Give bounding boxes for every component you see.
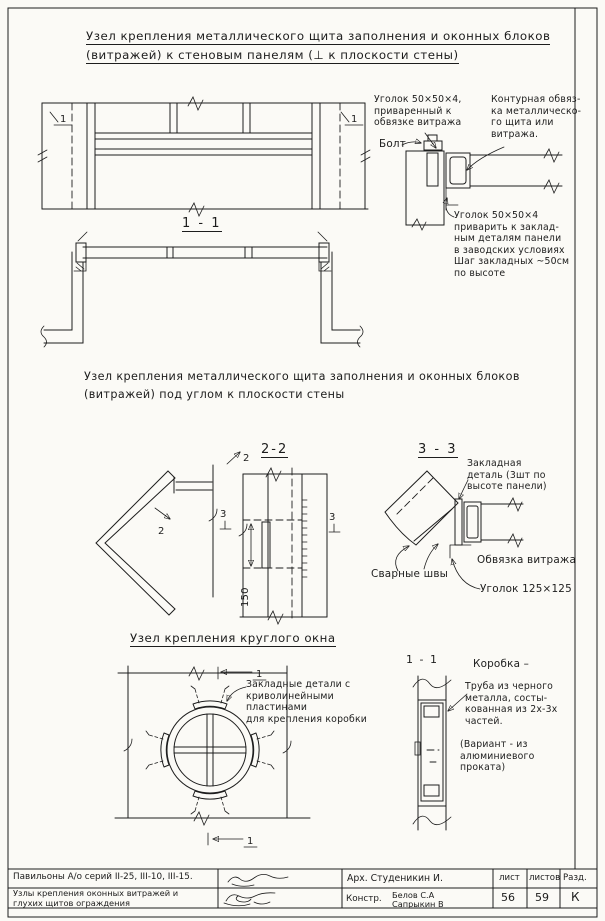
note-korobka-title: Коробка – [473, 659, 529, 671]
titleblock-constructor-label: Констр. [346, 894, 382, 904]
corner-plan: 2 2 3 3 [96, 452, 340, 615]
signature-constructor [224, 893, 275, 906]
elev-mark-right: 1 [351, 114, 357, 125]
cut-mark-3-left: 3 [220, 509, 226, 520]
plan-section-1-1 [41, 232, 363, 347]
titleblock-project: Павильоны А/о серий II-25, III-10, III-1… [13, 872, 193, 882]
note-korobka-body: Труба из черного металла, состы- кованна… [465, 681, 557, 727]
elev-mark-left: 1 [60, 114, 66, 125]
note-embed-detail: Закладная деталь (3шт по высоте панели) [467, 458, 547, 493]
second-title-line1: Узел крепления металлического щита запол… [84, 371, 520, 383]
cut-mark-2-top: 2 [243, 453, 249, 464]
signature-architect [228, 874, 288, 886]
titleblock-col-razd: Разд. [563, 873, 587, 883]
note-korobka-variant: (Вариант - из алюминиевого проката) [460, 739, 535, 774]
drawing-sheet: 1 1 [0, 0, 605, 921]
note-bolt: Болт [379, 139, 406, 151]
titleblock-razd-value: К [571, 890, 580, 904]
titleblock-sheet-number: 56 [501, 891, 515, 904]
main-title-line1: Узел крепления металлического щита запол… [86, 31, 550, 45]
cut-mark-3-right: 3 [329, 512, 335, 523]
section-label-1-1-plan: 1 - 1 [182, 218, 222, 232]
section-label-2-2: 2-2 [261, 444, 288, 458]
titleblock-architect: Арх. Студеникин И. [347, 873, 443, 884]
round-window-section [413, 676, 467, 830]
titleblock-col-list: лист [499, 873, 520, 883]
note-weld-seams: Сварные швы [371, 569, 448, 581]
section-2-2-drawing [239, 468, 327, 624]
section-label-1-1-round: 1 - 1 [406, 654, 438, 666]
titleblock-sheet-title: Узлы крепления оконных витражей и глухих… [13, 889, 218, 908]
main-title-line2: (витражей) к стеновым панелям (⊥ к плоск… [86, 50, 459, 64]
second-title-line2: (витражей) под углом к плоскости стены [84, 389, 345, 401]
note-vitrage-frame: Обвязка витража [477, 555, 576, 567]
titleblock-constructor-name2: Сапрыкин В [392, 899, 444, 909]
titleblock-sheets-total: 59 [535, 891, 549, 904]
cut-mark-2-bottom: 2 [158, 526, 164, 537]
note-angle-welded: Уголок 50×50×4, приваренный к обвязке ви… [374, 94, 462, 129]
third-title: Узел крепления круглого окна [130, 633, 336, 647]
elevation-view: 1 1 [38, 97, 370, 216]
note-angle-125: Уголок 125×125 [480, 584, 572, 596]
dimension-150: 150 [240, 587, 252, 607]
cut-mark-1-bottom: 1 [247, 836, 253, 847]
section-label-3-3: 3 - 3 [418, 444, 458, 458]
titleblock-col-listov: листов [529, 873, 560, 883]
note-angle-site-weld: Уголок 50×50×4 приварить к заклад- ным д… [454, 210, 569, 279]
note-embed-plates: Закладные детали с криволинейными пласти… [246, 679, 367, 725]
note-contour-frame: Контурная обвяз- ка металлическо- го щит… [491, 94, 581, 140]
